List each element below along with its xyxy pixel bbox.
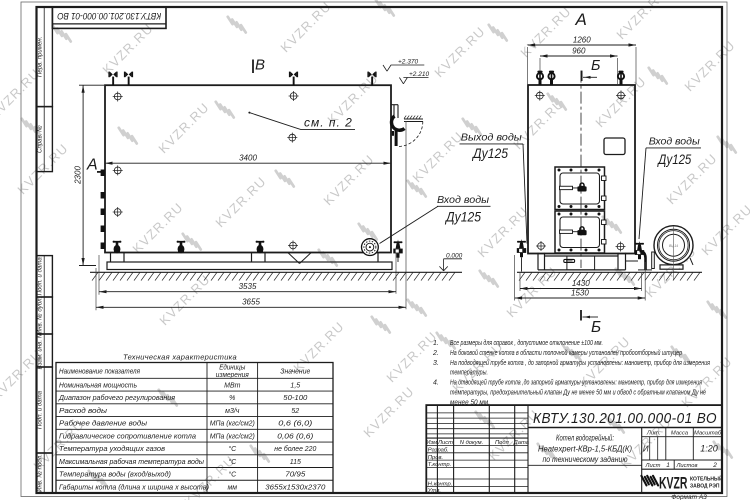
- svg-text:температуры, предохранительный: температуры, предохранительный клапан Ду…: [450, 389, 706, 397]
- svg-text:Гидравлическое сопротивление к: Гидравлическое сопротивление котла: [59, 432, 196, 440]
- svg-text:м3/ч: м3/ч: [225, 408, 240, 415]
- svg-text:Инв. № дубл.: Инв. № дубл.: [37, 297, 44, 334]
- svg-text:Лист: Лист: [645, 463, 661, 469]
- svg-text:Вход воды: Вход воды: [437, 194, 489, 206]
- svg-text:Н.контр.: Н.контр.: [428, 481, 453, 487]
- svg-text:Пров.: Пров.: [428, 455, 443, 461]
- svg-text:KVZR.RU: KVZR.RU: [517, 3, 574, 60]
- svg-text:1430: 1430: [572, 279, 590, 288]
- svg-text:3655: 3655: [242, 298, 260, 307]
- svg-text:МПа (кгс/см2): МПа (кгс/см2): [210, 421, 255, 428]
- svg-text:В: В: [255, 57, 265, 74]
- svg-text:Дата: Дата: [513, 440, 530, 446]
- svg-text:Масштаб: Масштаб: [694, 431, 722, 437]
- svg-text:Ду125: Ду125: [657, 152, 692, 167]
- svg-text:KVZR.RU: KVZR.RU: [681, 37, 738, 94]
- svg-text:Единицы: Единицы: [219, 364, 246, 372]
- svg-text:KVZR.RU: KVZR.RU: [290, 318, 347, 375]
- svg-text:1.: 1.: [433, 340, 439, 347]
- svg-text:2: 2: [712, 462, 717, 469]
- svg-text:2.: 2.: [432, 350, 439, 357]
- svg-text:На отводящей трубе котла ,до з: На отводящей трубе котла ,до запорной ар…: [450, 379, 702, 387]
- svg-text:Листов: Листов: [675, 463, 697, 469]
- svg-text:не более 220: не более 220: [274, 445, 316, 453]
- svg-text:70/95: 70/95: [285, 472, 305, 479]
- svg-text:Диапазон рабочего регулировани: Диапазон рабочего регулирования: [58, 394, 175, 402]
- svg-text:А: А: [575, 10, 587, 29]
- svg-text:Лист: Лист: [437, 440, 453, 446]
- svg-text:KVZR.RU: KVZR.RU: [277, 0, 334, 55]
- svg-text:Техническая характеристика: Техническая характеристика: [123, 353, 237, 362]
- svg-text:КВТУ.130.201.00.000-01 ВО: КВТУ.130.201.00.000-01 ВО: [57, 10, 162, 21]
- svg-text:°С: °С: [228, 471, 237, 479]
- svg-text:А: А: [86, 157, 98, 174]
- svg-text:Лит.: Лит.: [646, 431, 661, 437]
- svg-text:Наименование показателя: Наименование показателя: [59, 369, 140, 376]
- svg-text:Инв. № подл.: Инв. № подл.: [37, 454, 44, 492]
- svg-text:0,06 (0,6): 0,06 (0,6): [277, 433, 313, 440]
- svg-text:3400: 3400: [239, 154, 257, 163]
- svg-text:1,5: 1,5: [290, 382, 300, 389]
- svg-text:Габариты котла (длина х ширина: Габариты котла (длина х ширина х высота): [59, 483, 209, 491]
- svg-text:Взам. инв. №: Взам. инв. №: [37, 331, 44, 369]
- svg-text:Подп. и дата: Подп. и дата: [37, 390, 44, 429]
- svg-text:Котел водогрейный:: Котел водогрейный:: [556, 433, 614, 443]
- svg-text:Формат А3: Формат А3: [671, 494, 707, 500]
- svg-text:2300: 2300: [74, 166, 83, 185]
- svg-text:Перв. примен.: Перв. примен.: [37, 37, 44, 78]
- svg-text:1:20: 1:20: [700, 444, 718, 454]
- svg-text:+2.210: +2.210: [409, 71, 429, 78]
- svg-text:Расход воды: Расход воды: [59, 407, 108, 415]
- svg-text:Ду125: Ду125: [444, 210, 481, 225]
- svg-text:Изм: Изм: [426, 440, 437, 446]
- svg-text:температуры.: температуры.: [450, 370, 488, 377]
- svg-text:°С: °С: [228, 458, 237, 466]
- svg-text:1260: 1260: [573, 36, 591, 45]
- svg-text:ЗАВОД РЭП: ЗАВОД РЭП: [690, 484, 720, 490]
- svg-text:КОТЕЛЬНЫЙ: КОТЕЛЬНЫЙ: [690, 475, 723, 483]
- svg-text:Номинальная мощность: Номинальная мощность: [59, 382, 137, 389]
- svg-text:по техническому заданию: по техническому заданию: [543, 454, 628, 464]
- svg-text:Утв.: Утв.: [427, 488, 441, 494]
- svg-text:Значение: Значение: [280, 369, 310, 376]
- svg-text:KVZR.RU: KVZR.RU: [360, 383, 417, 440]
- svg-text:KVZR.RU: KVZR.RU: [698, 201, 750, 258]
- svg-text:Ду125: Ду125: [471, 146, 508, 161]
- svg-text:мм: мм: [227, 484, 237, 491]
- svg-text:4.: 4.: [433, 380, 439, 387]
- svg-text:1: 1: [666, 462, 670, 469]
- svg-text:Максимальная рабочая температу: Максимальная рабочая температура воды: [59, 458, 205, 466]
- svg-text:И: И: [643, 445, 649, 454]
- svg-text:°С: °С: [228, 445, 237, 453]
- svg-text:52: 52: [291, 408, 299, 415]
- svg-text:Температура уходящих газов: Температура уходящих газов: [59, 445, 165, 453]
- svg-text:+2.370: +2.370: [398, 59, 418, 66]
- svg-text:N докум.: N докум.: [460, 440, 483, 446]
- svg-text:KVZR.RU: KVZR.RU: [212, 173, 269, 230]
- svg-text:Вход воды: Вход воды: [649, 136, 700, 148]
- svg-text:На подводящей трубе котла ,: На подводящей трубе котла , до запорной …: [450, 359, 710, 367]
- svg-text:Все размеры для справок , допу: Все размеры для справок , допустимое отк…: [450, 339, 603, 347]
- svg-text:Б: Б: [591, 319, 601, 336]
- svg-text:МВт: МВт: [224, 382, 241, 389]
- svg-text:115: 115: [290, 459, 301, 466]
- svg-text:Масса: Масса: [671, 431, 689, 437]
- svg-text:KVZR.RU: KVZR.RU: [431, 23, 488, 80]
- svg-text:KVZR.RU: KVZR.RU: [155, 99, 212, 156]
- svg-text:3655х1530х2370: 3655х1530х2370: [265, 484, 325, 491]
- svg-text:0.000: 0.000: [446, 252, 463, 259]
- svg-text:Подп. и дата: Подп. и дата: [37, 257, 44, 296]
- svg-text:На боковой стенке котла в обла: На боковой стенке котла в области топочн…: [450, 349, 682, 357]
- svg-text:Б: Б: [591, 58, 600, 74]
- svg-text:измерения: измерения: [216, 372, 249, 379]
- svg-text:см. п. 2: см. п. 2: [304, 116, 353, 130]
- svg-text:3.: 3.: [433, 360, 439, 367]
- svg-text:Разраб.: Разраб.: [428, 448, 449, 454]
- svg-text:KVZR: KVZR: [659, 475, 688, 493]
- svg-text:0,6 (6,0): 0,6 (6,0): [278, 421, 312, 428]
- svg-text:Справ. №: Справ. №: [37, 125, 44, 153]
- svg-text:Подп: Подп: [495, 440, 510, 446]
- svg-text:Рабочее давление воды: Рабочее давление воды: [59, 420, 148, 428]
- svg-text:%: %: [229, 395, 235, 402]
- svg-text:Выход воды: Выход воды: [461, 132, 522, 144]
- svg-text:50-100: 50-100: [283, 395, 307, 402]
- svg-text:МПа (кгс/см2): МПа (кгс/см2): [210, 433, 255, 440]
- svg-text:Т.контр.: Т.контр.: [428, 462, 451, 468]
- svg-text:KVZR.RU: KVZR.RU: [129, 199, 186, 256]
- svg-text:Температура воды (вход/выход): Температура воды (вход/выход): [59, 471, 171, 479]
- svg-text:КВТУ.130.201.00.000-01 ВО: КВТУ.130.201.00.000-01 ВО: [533, 410, 717, 427]
- svg-text:Heatexpert-КВр-1,5-КБД(К): Heatexpert-КВр-1,5-КБД(К): [538, 444, 632, 454]
- svg-text:KVZR.RU: KVZR.RU: [383, 328, 440, 385]
- svg-text:3535: 3535: [239, 282, 257, 291]
- svg-text:1530: 1530: [571, 289, 589, 298]
- svg-text:KVZR.RU: KVZR.RU: [320, 151, 377, 208]
- svg-text:960: 960: [572, 47, 586, 56]
